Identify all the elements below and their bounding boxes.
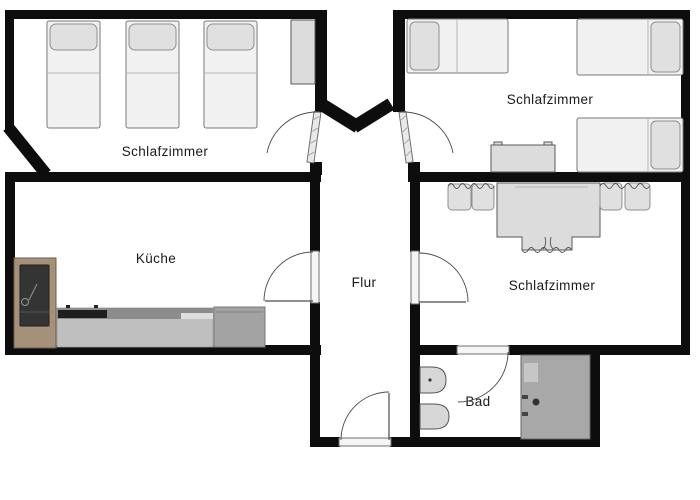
wall-top-right [393, 10, 690, 19]
door-swing-arc [341, 392, 389, 440]
cushion [600, 183, 622, 210]
pillow [651, 22, 680, 72]
shower [521, 355, 590, 439]
room-label: Schlafzimmer [122, 144, 209, 159]
wall-room2-left [393, 10, 405, 112]
wall-stub-left-door [310, 162, 322, 175]
single-bed [126, 21, 179, 128]
wall-bathroom-right [590, 355, 600, 447]
pillow [207, 24, 254, 50]
shower-valve [522, 412, 528, 416]
door-swing-arc [264, 252, 313, 301]
cushion [625, 183, 650, 210]
door-bedroom-top-left [267, 111, 321, 162]
room-label: Bad [465, 394, 490, 409]
pillow [410, 22, 439, 70]
door-bedroom-top-right [399, 111, 453, 162]
room-label: Schlafzimmer [507, 92, 594, 107]
wall-hall-right-upper [410, 174, 420, 252]
single-bed [204, 21, 257, 128]
single-bed [577, 19, 683, 75]
wall-bottom-left-of-entrance [310, 437, 340, 447]
cooktop [58, 310, 107, 318]
wall-chamfer [8, 127, 46, 174]
room-bedroom-top-left: Schlafzimmer [47, 20, 315, 159]
room-kitchen: Küche [14, 251, 265, 348]
kitchen-counter [57, 305, 213, 347]
door-panel [411, 251, 419, 304]
room-label: Schlafzimmer [509, 278, 596, 293]
door-panel [311, 251, 319, 303]
single-bed [577, 118, 683, 172]
door-panel [339, 438, 391, 446]
room-bedroom-right: Schlafzimmer [448, 183, 650, 293]
wall-hall-right-lower [410, 303, 420, 447]
wall-kitchen-top [5, 172, 321, 182]
drain [428, 378, 431, 381]
wall-left-outer [5, 10, 14, 132]
single-bed [47, 21, 100, 128]
shower-head [533, 399, 540, 406]
pillow [651, 121, 680, 169]
single-bed [407, 19, 508, 73]
wall-bathroom-top-left [420, 345, 458, 355]
door-swing-arc [419, 253, 468, 302]
door-panel [457, 346, 509, 354]
room-label: Küche [136, 251, 176, 266]
floor-plan: Schlafzimmer Schlafzimmer [0, 0, 700, 500]
pillow [50, 24, 97, 50]
wall-room1-right [315, 10, 327, 112]
oven-cabinet [14, 258, 56, 348]
shower-valve [522, 395, 528, 399]
knob [94, 305, 98, 308]
room-bathroom: Bad [420, 355, 590, 439]
bed-body [497, 183, 600, 250]
entrance-door [339, 392, 391, 446]
wall-bathroom-top-right [508, 345, 690, 355]
sink [420, 367, 446, 393]
room-bedroom-top-right: Schlafzimmer [407, 19, 683, 172]
wall-room2-room3-divider [408, 172, 690, 182]
knob [66, 305, 70, 308]
double-bed [448, 183, 650, 253]
room-hallway: Flur [352, 275, 377, 290]
wall-hall-left-upper [310, 174, 320, 252]
wall-cabinet [291, 20, 315, 84]
door-kitchen [264, 251, 319, 303]
wall-v-right [354, 104, 391, 127]
door-bedroom-right [411, 251, 468, 304]
toilet [420, 404, 449, 429]
wall-hall-left-lower [310, 302, 320, 447]
door-panel [399, 111, 413, 162]
room-label: Flur [352, 275, 377, 290]
floor-plan-page: Schlafzimmer Schlafzimmer [0, 0, 700, 500]
wall-top-left [5, 10, 327, 19]
under-counter-appliance [214, 307, 265, 347]
side-table [491, 142, 555, 172]
pillow [129, 24, 176, 50]
shower-tray-detail [524, 363, 538, 382]
sink-strip [181, 313, 213, 319]
